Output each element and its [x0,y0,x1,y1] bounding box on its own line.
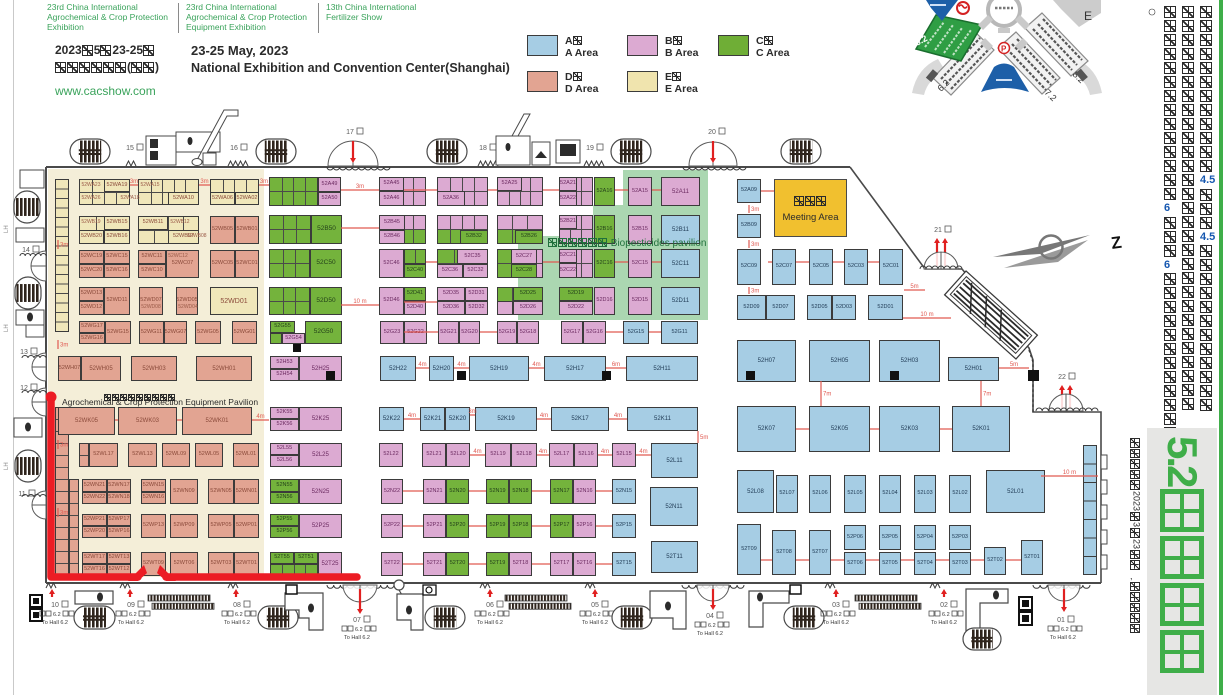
svg-text:13: 13 [20,349,28,356]
svg-text:6.2: 6.2 [235,612,243,618]
svg-text:02: 02 [940,602,948,609]
svg-text:15: 15 [126,145,134,152]
svg-text:6.2: 6.2 [1061,627,1069,633]
svg-text:5m: 5m [1010,362,1018,368]
svg-text:LH: LH [4,462,10,470]
svg-text:6.2: 6.2 [593,612,601,618]
svg-text:To Hall 6.2: To Hall 6.2 [931,620,957,626]
svg-text:Z: Z [1110,233,1123,253]
svg-text:To Hall 6.2: To Hall 6.2 [697,631,723,637]
svg-text:To Hall 6.2: To Hall 6.2 [823,620,849,626]
svg-text:6m: 6m [612,362,620,368]
svg-text:4m: 4m [540,413,548,419]
svg-text:4m: 4m [457,362,465,368]
svg-text:4m: 4m [408,413,416,419]
svg-text:E: E [1084,9,1092,23]
svg-text:10 m: 10 m [920,312,933,318]
svg-text:4m: 4m [614,413,622,419]
svg-text:12: 12 [20,385,28,392]
svg-text:06: 06 [486,602,494,609]
svg-text:6.2: 6.2 [942,612,950,618]
svg-text:04: 04 [706,613,714,620]
svg-text:To Hall 6.2: To Hall 6.2 [477,620,503,626]
svg-text:19: 19 [586,145,594,152]
svg-text:10 m: 10 m [353,299,366,305]
svg-text:08: 08 [233,602,241,609]
svg-text:To Hall 6.2: To Hall 6.2 [344,635,370,641]
svg-text:05: 05 [591,602,599,609]
svg-text:18: 18 [479,145,487,152]
svg-text:6.2: 6.2 [129,612,137,618]
svg-text:8.2: 8.2 [1071,69,1087,85]
svg-text:4m: 4m [532,362,540,368]
svg-text:To Hall 6.2: To Hall 6.2 [582,620,608,626]
svg-text:7m: 7m [823,392,831,398]
svg-text:3m: 3m [356,184,364,190]
svg-text:LH: LH [4,324,10,332]
svg-text:LH: LH [4,225,10,233]
svg-text:To Hall 6.2: To Hall 6.2 [42,620,68,626]
svg-text:16: 16 [230,145,238,152]
svg-text:6.2: 6.2 [355,627,363,633]
svg-text:5m: 5m [910,284,918,290]
svg-text:3m: 3m [751,207,759,213]
svg-text:4m: 4m [601,449,609,455]
svg-text:17: 17 [346,129,354,136]
svg-text:20: 20 [708,129,716,136]
svg-text:6.2: 6.2 [935,78,951,94]
svg-text:To Hall 6.2: To Hall 6.2 [1050,635,1076,641]
svg-text:5m: 5m [700,435,708,441]
svg-text:21: 21 [934,227,942,234]
svg-text:5.2: 5.2 [913,33,929,48]
svg-text:4m: 4m [639,449,647,455]
svg-text:4m: 4m [473,449,481,455]
svg-text:7.2: 7.2 [1043,87,1059,103]
svg-text:09: 09 [127,602,135,609]
svg-text:6.2: 6.2 [708,623,716,629]
svg-text:10: 10 [51,602,59,609]
svg-text:6.2: 6.2 [53,612,61,618]
svg-text:01: 01 [1057,617,1065,624]
svg-text:07: 07 [353,617,361,624]
svg-text:4m: 4m [418,362,426,368]
svg-text:7m: 7m [983,392,991,398]
svg-text:6.2: 6.2 [488,612,496,618]
svg-text:3m: 3m [751,289,759,295]
svg-text:To Hall 6.2: To Hall 6.2 [224,620,250,626]
svg-text:P: P [1001,45,1007,54]
svg-text:03: 03 [832,602,840,609]
svg-text:22: 22 [1058,374,1066,381]
svg-text:14: 14 [22,247,30,254]
svg-text:11: 11 [18,491,25,498]
svg-text:4m: 4m [539,449,547,455]
svg-text:To Hall 6.2: To Hall 6.2 [118,620,144,626]
svg-text:10 m: 10 m [1063,470,1076,476]
svg-text:6.2: 6.2 [834,612,842,618]
svg-text:3m: 3m [751,242,759,248]
